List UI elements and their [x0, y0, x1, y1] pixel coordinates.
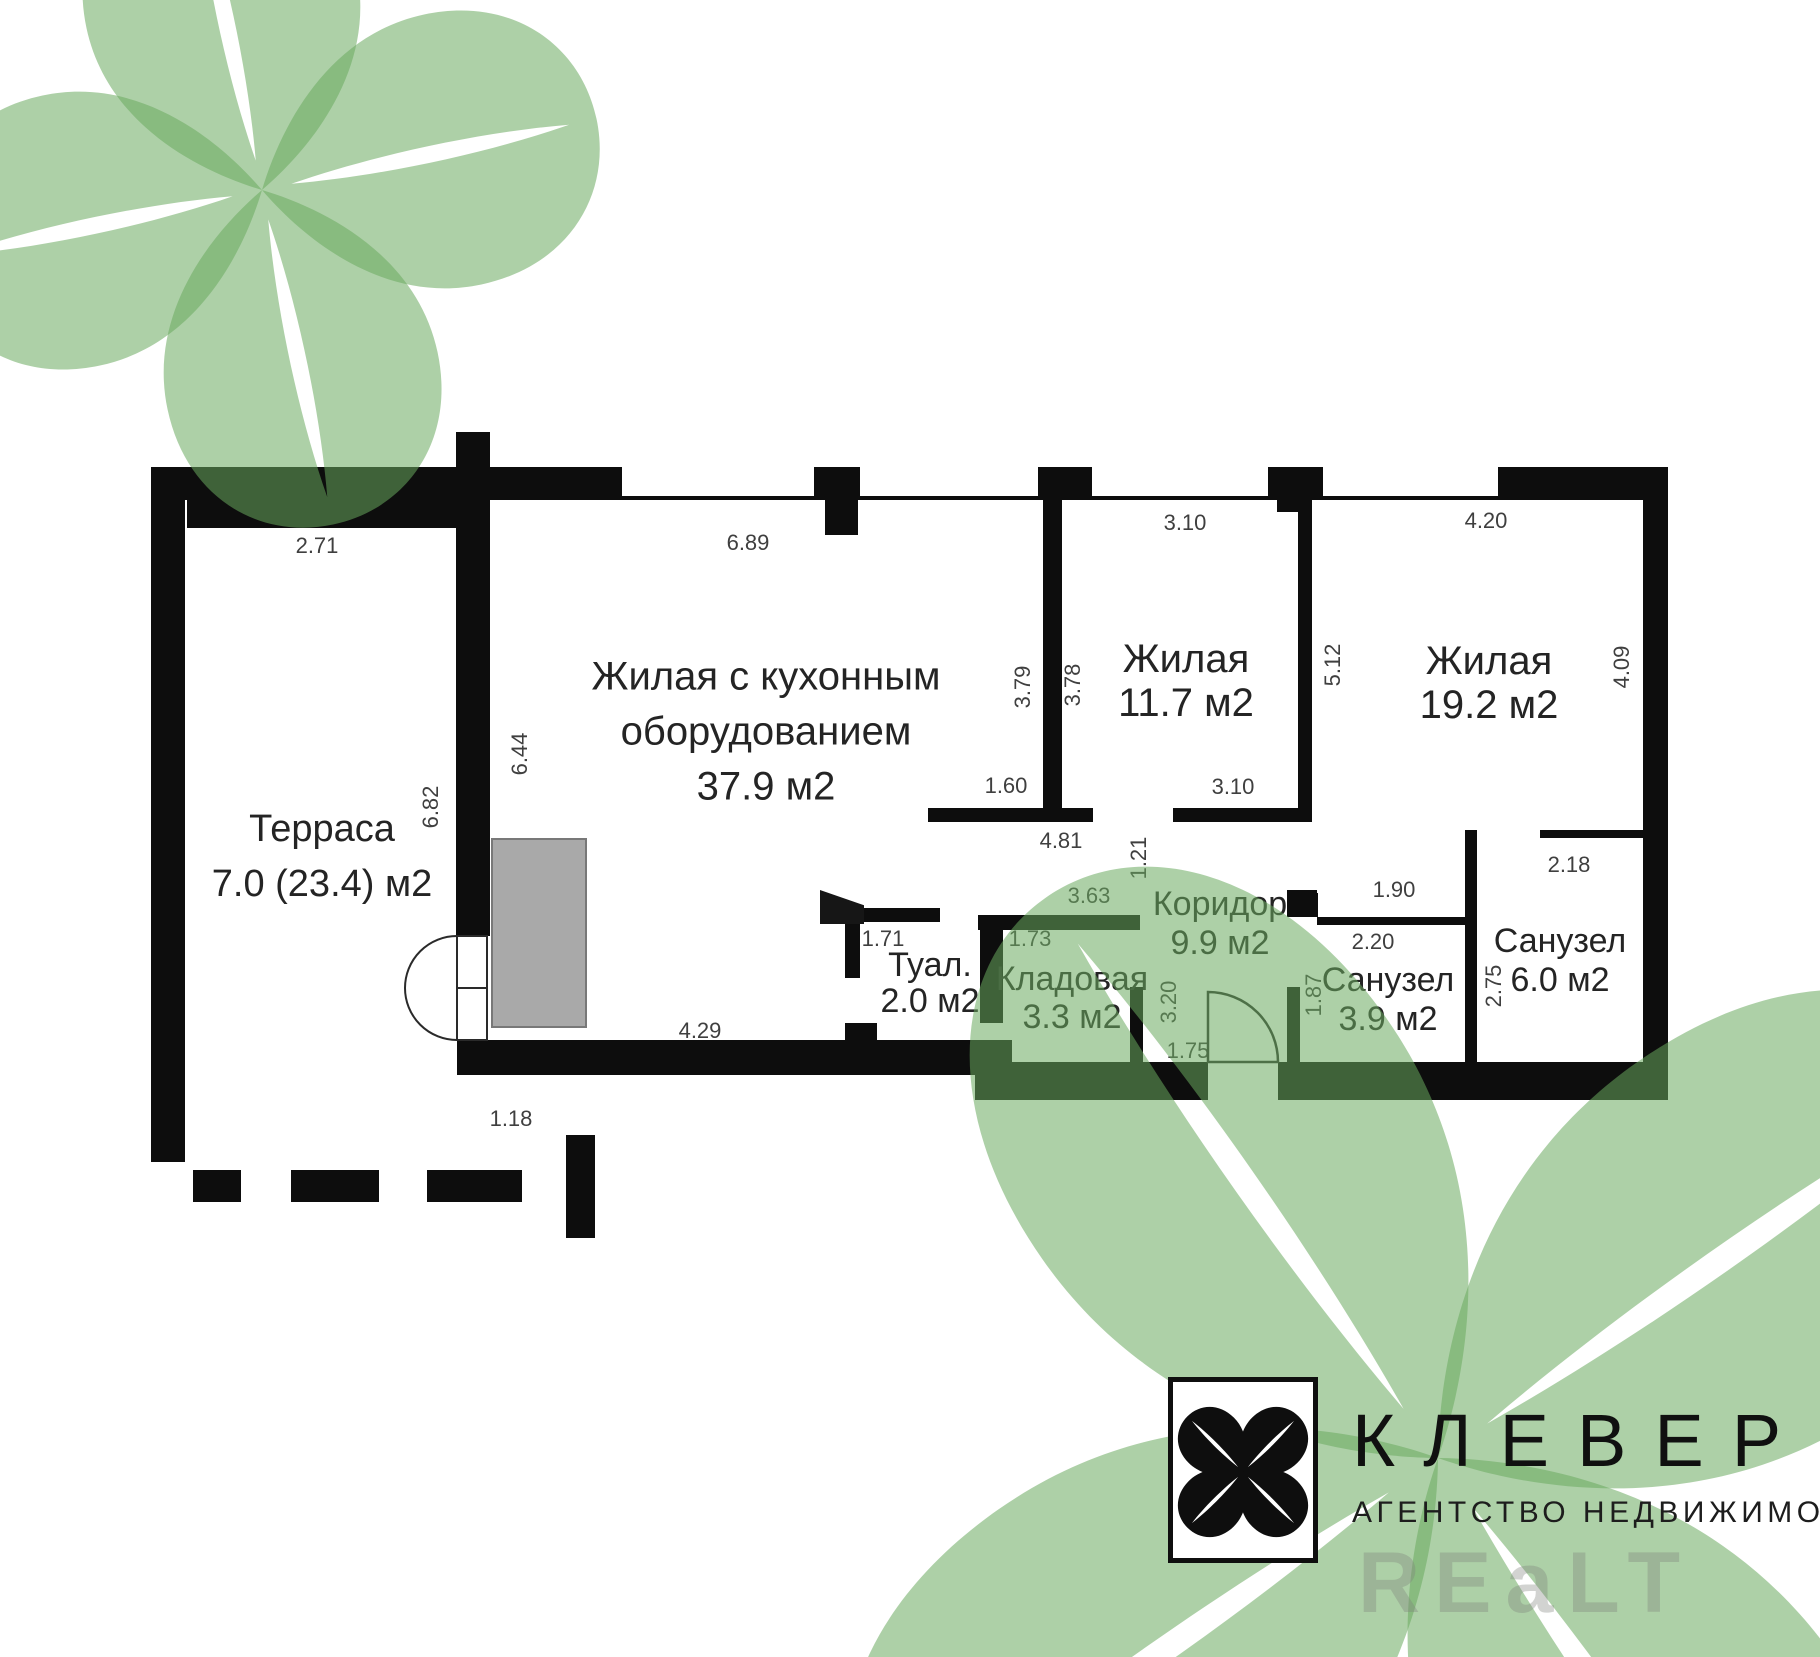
logo-subtitle: АГЕНТСТВО НЕДВИЖИМОСТИ — [1352, 1496, 1820, 1530]
floor-plan-image: Терраса7.0 (23.4) м2Жилая с кухоннымобор… — [0, 0, 1820, 1657]
terrace-door-leaf — [457, 936, 487, 988]
terrace-door-arc — [405, 936, 457, 1040]
logo-clover-box — [1168, 1377, 1318, 1563]
terrace-door-leaf — [457, 988, 487, 1040]
clover-icon — [1173, 1382, 1313, 1558]
realt-watermark: REaLT — [1358, 1534, 1694, 1633]
clover-leaf-group — [1173, 1382, 1313, 1558]
logo-title: КЛЕВЕР — [1352, 1398, 1809, 1483]
entrance-door-arc — [1208, 992, 1278, 1062]
